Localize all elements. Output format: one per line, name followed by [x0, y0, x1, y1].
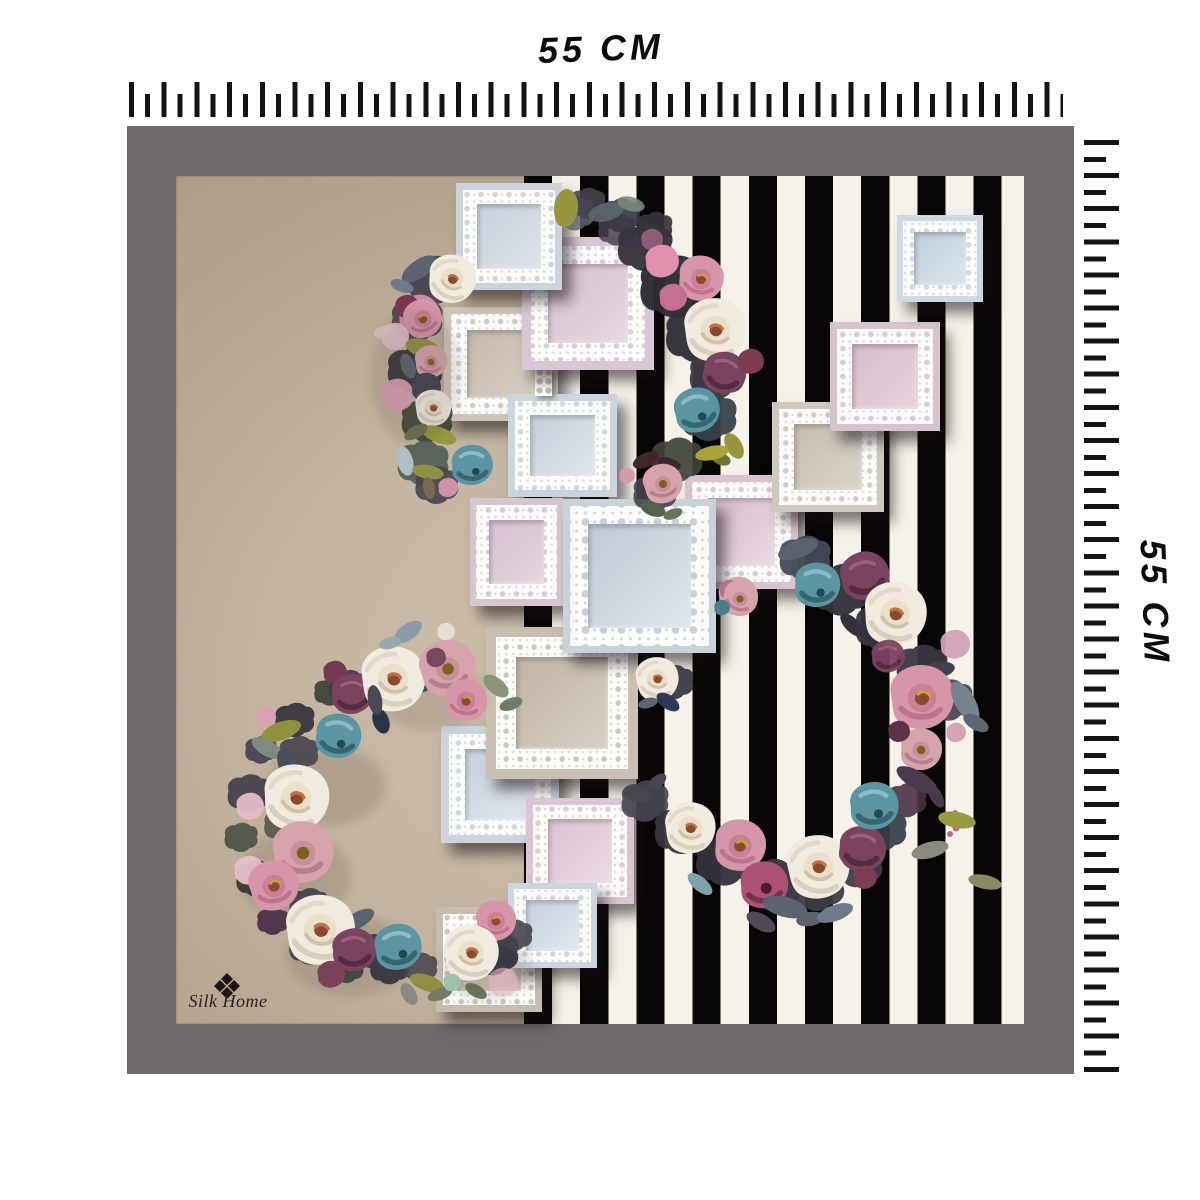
svg-text:Silk Home: Silk Home: [189, 991, 268, 1011]
